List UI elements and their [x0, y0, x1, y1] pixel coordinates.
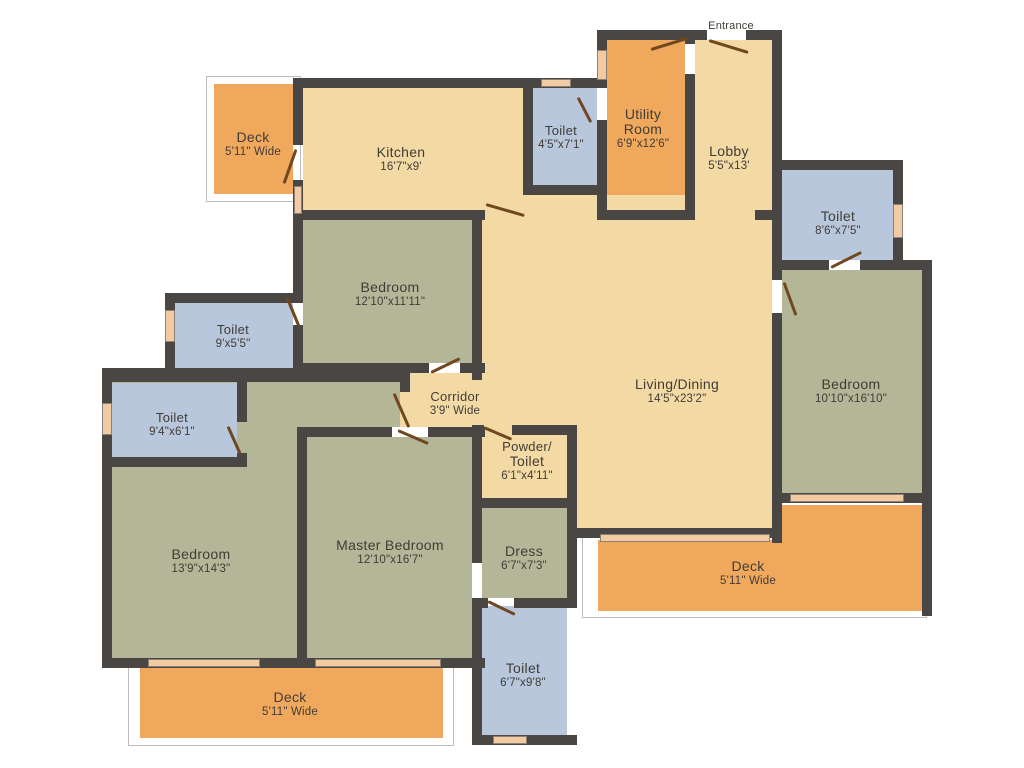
wall-segment: [567, 425, 577, 608]
label-corridor: Corridor3'9" Wide: [430, 390, 480, 418]
wall-segment: [772, 313, 782, 503]
wall-segment: [293, 210, 485, 220]
window-sill: [597, 50, 607, 80]
wall-segment: [523, 185, 607, 195]
window-sill: [315, 659, 441, 667]
wall-segment: [772, 270, 782, 280]
wall-segment: [293, 78, 303, 145]
label-powder-toilet: Powder/Toilet6'1"x4'11": [501, 440, 552, 483]
label-toilet-right: Toilet8'6"x7'5": [815, 208, 861, 238]
wall-segment: [237, 382, 247, 422]
wall-segment: [514, 598, 570, 608]
label-toilet-top: Toilet4'5"x7'1": [538, 124, 584, 152]
wall-segment: [472, 498, 570, 508]
wall-segment: [512, 425, 570, 435]
window-sill: [541, 79, 571, 87]
wall-segment: [472, 598, 482, 745]
room-living-dining: [482, 195, 772, 428]
label-kitchen: Kitchen16'7"x9': [377, 144, 426, 174]
window-sill: [493, 736, 527, 744]
wall-segment: [597, 210, 695, 220]
label-dress: Dress6'7"x7'3": [501, 543, 547, 573]
wall-segment: [772, 160, 903, 170]
room-deck-right-upper: [782, 505, 922, 545]
room-bedroom-bottom-left-arm: [297, 381, 400, 427]
window-sill: [294, 186, 302, 214]
label-bedroom-middle: Bedroom12'10"x11'11": [355, 279, 425, 309]
label-bedroom-bottom-left: Bedroom13'9"x14'3": [172, 546, 231, 576]
window-sill: [600, 534, 770, 542]
wall-segment: [755, 210, 772, 220]
wall-segment: [922, 260, 932, 616]
wall-segment: [472, 210, 482, 380]
wall-segment: [772, 260, 829, 270]
wall-segment: [597, 120, 607, 212]
wall-segment: [165, 293, 303, 303]
wall-segment: [400, 373, 410, 392]
wall-segment: [685, 74, 695, 220]
wall-segment: [472, 427, 482, 563]
wall-segment: [102, 368, 410, 382]
label-bedroom-right: Bedroom10'10"x16'10": [815, 376, 887, 406]
label-toilet-left: Toilet9'4"x6'1": [149, 411, 195, 439]
window-sill: [102, 403, 112, 435]
wall-segment: [460, 363, 485, 373]
wall-segment: [472, 425, 484, 435]
label-living-dining: Living/Dining14'5"x23'2": [635, 376, 719, 406]
wall-segment: [523, 78, 533, 195]
floor-plan: Entrance Deck5'11" Wide Kitchen16'7"x9' …: [0, 0, 1024, 768]
label-lobby: Lobby5'5"x13': [708, 143, 749, 173]
wall-segment: [297, 427, 307, 668]
wall-segment: [472, 598, 488, 608]
window-sill: [148, 659, 260, 667]
label-toilet-bottom: Toilet6'7"x9'8": [500, 660, 546, 690]
wall-segment: [237, 453, 247, 467]
label-master-bedroom: Master Bedroom12'10"x16'7": [336, 537, 444, 567]
window-sill: [790, 494, 904, 502]
label-deck-right: Deck5'11" Wide: [720, 558, 776, 588]
label-toilet-mid-left: Toilet9'x5'5": [216, 323, 251, 351]
wall-segment: [772, 30, 782, 270]
wall-segment: [102, 457, 247, 467]
window-sill: [893, 204, 903, 238]
label-deck-top-left: Deck5'11" Wide: [225, 129, 281, 159]
label-deck-bottom-left: Deck5'11" Wide: [262, 689, 318, 719]
wall-segment: [297, 427, 392, 437]
room-living-dining-south: [577, 428, 772, 538]
label-utility-room: UtilityRoom6'9"x12'6": [617, 106, 669, 151]
room-lobby: [695, 40, 772, 220]
window-sill: [165, 310, 175, 342]
